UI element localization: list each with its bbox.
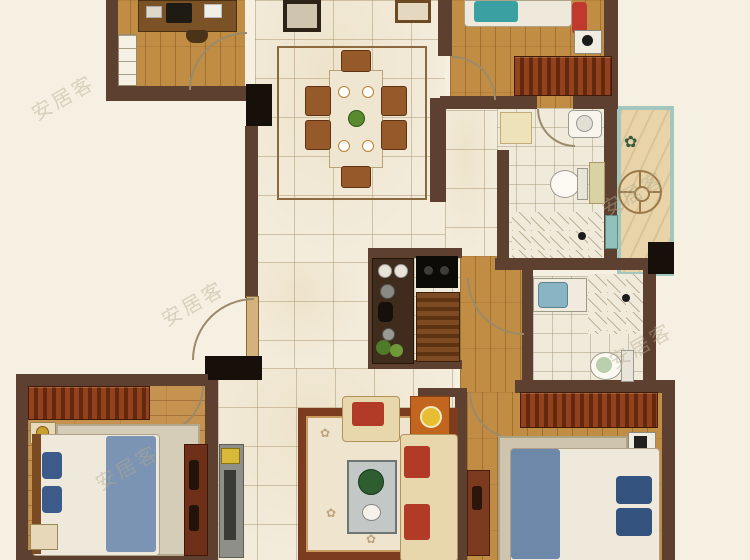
bath-second-toilet-tank xyxy=(621,350,634,382)
computer-monitor xyxy=(166,3,192,23)
wall-bedroom-bl-top xyxy=(16,374,208,386)
bedroom-br-pillow-1 xyxy=(616,476,652,504)
wall-bedroom-bl-left xyxy=(16,382,28,560)
table-center xyxy=(634,186,650,202)
desk-chair xyxy=(186,30,208,43)
cooktop xyxy=(416,256,458,288)
bedroom-bl-pillow-2 xyxy=(42,486,62,513)
bedroom-bl-dresser-item xyxy=(189,460,199,490)
rug-motif: ✿ xyxy=(326,506,336,520)
side-table xyxy=(410,396,450,436)
kitchen-sink-2 xyxy=(394,264,408,278)
hallway-floor xyxy=(255,262,368,368)
bath-second-shower xyxy=(588,274,643,334)
wall-bedroom-br-right xyxy=(662,380,675,560)
sofa-cushion-1 xyxy=(404,446,430,478)
tv-screen xyxy=(224,470,236,540)
dining-chair-left-2 xyxy=(305,120,331,150)
watermark: 安居客 xyxy=(25,67,99,127)
bath-second-drain xyxy=(622,294,630,302)
bedroom-tr-wardrobe xyxy=(514,56,612,96)
bedroom-bl-nightstand-bottom xyxy=(30,524,58,550)
dining-chair-right-1 xyxy=(381,86,407,116)
dining-chair-bottom xyxy=(341,166,371,188)
desk-papers xyxy=(204,4,222,18)
dining-console xyxy=(395,0,431,23)
dining-sideboard xyxy=(283,0,321,32)
wall-bath-second-right xyxy=(643,268,656,392)
rug-motif: ✿ xyxy=(366,532,376,546)
kitchen-cabinet xyxy=(416,292,460,362)
dining-chair-right-2 xyxy=(381,120,407,150)
wall-entry-left xyxy=(245,126,258,298)
wall-bath-main-bottom xyxy=(495,258,655,270)
bath-main-vanity xyxy=(589,162,605,204)
bath-main-sink-bowl xyxy=(576,115,593,132)
coffee-table xyxy=(347,460,397,534)
bath-main-cabinet xyxy=(500,112,532,144)
dining-chair-top xyxy=(341,50,371,72)
entry-door-swing xyxy=(192,298,254,360)
bedroom-tr-teal-pillow xyxy=(474,1,518,22)
column-balcony xyxy=(648,242,674,274)
bath-second-basin xyxy=(538,282,568,308)
bookshelf xyxy=(118,34,137,86)
bedroom-tr-lamp xyxy=(582,35,593,46)
kitchen-kettle xyxy=(378,302,393,322)
wall-study-left xyxy=(106,0,118,92)
wall-dining-right-upper xyxy=(438,0,452,56)
coffee-table-bowl xyxy=(362,504,381,521)
armchair-cushion xyxy=(352,402,384,426)
wall-dining-right-lower xyxy=(430,98,446,202)
table-lamp xyxy=(420,406,442,428)
bath-main-shower xyxy=(512,212,602,258)
cooktop-burner-2 xyxy=(440,266,449,275)
wall-bath-main-left xyxy=(497,150,509,265)
column-study-corner xyxy=(246,84,272,126)
bedroom-br-dresser xyxy=(467,470,490,556)
bath-main-toilet-bowl xyxy=(550,170,580,198)
kitchen-plant xyxy=(376,340,391,355)
balcony-door-glass xyxy=(605,215,618,249)
plate xyxy=(362,86,374,98)
bedroom-bl-dresser-item-2 xyxy=(189,505,199,531)
bedroom-bl-blanket xyxy=(106,436,156,552)
bath-main-drain xyxy=(578,232,586,240)
kitchen-pot xyxy=(380,284,395,299)
kitchen-sink xyxy=(378,264,392,278)
sofa-cushion-2 xyxy=(404,504,430,540)
bedroom-bl-wardrobe xyxy=(28,386,150,420)
cooktop-burner xyxy=(424,266,433,275)
dining-chair-left-1 xyxy=(305,86,331,116)
plate xyxy=(338,86,350,98)
plate xyxy=(362,140,374,152)
bath-second-toilet-seat xyxy=(596,357,612,373)
bedroom-br-wardrobe xyxy=(520,392,658,428)
dining-nook-floor xyxy=(445,110,497,258)
bedroom-br-dresser-item xyxy=(472,486,482,510)
balcony-round-table xyxy=(618,170,662,214)
balcony-plant-icon: ✿ xyxy=(624,132,637,151)
tv-console-decor xyxy=(221,448,240,464)
bedroom-br-pillow-2 xyxy=(616,508,652,536)
bath-main-toilet-tank xyxy=(577,168,588,200)
coffee-table-plant xyxy=(358,469,384,495)
bedroom-bl-pillow-1 xyxy=(42,452,62,479)
desk-papers-2 xyxy=(146,6,162,18)
rug-motif: ✿ xyxy=(320,426,330,440)
plate xyxy=(338,140,350,152)
kitchen-plant-2 xyxy=(390,344,403,357)
table-plant xyxy=(348,110,365,127)
floor-plan: ✿ ✿ ✿ ✿ ✿ ✿ xyxy=(0,0,750,560)
bedroom-br-blanket xyxy=(511,449,560,559)
